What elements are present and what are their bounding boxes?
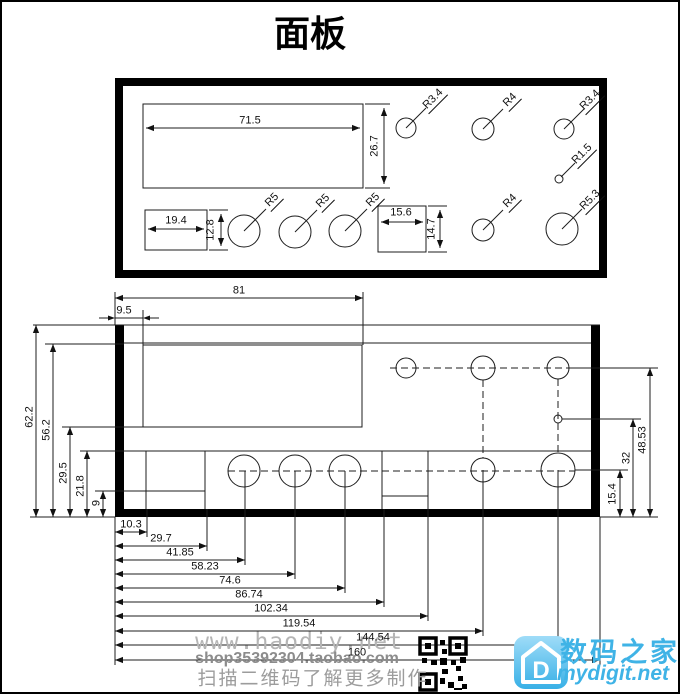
logo-letter: D bbox=[532, 657, 549, 684]
dim-9: 9 bbox=[92, 500, 103, 506]
dim-15-4: 15.4 bbox=[608, 483, 619, 504]
dim-10-3: 10.3 bbox=[120, 520, 141, 531]
dim-74-6: 74.6 bbox=[219, 576, 240, 587]
dim-160: 160 bbox=[348, 648, 366, 659]
drawing-canvas: D 面板 71.5 26.7 19.4 12.8 15.6 14.7 R5 R5… bbox=[0, 0, 680, 694]
dim-left-cutout-height: 12.8 bbox=[206, 219, 217, 240]
dim-86-74: 86.74 bbox=[235, 590, 263, 601]
top-panel-frame bbox=[119, 82, 603, 274]
dim-58-23: 58.23 bbox=[191, 562, 219, 573]
dim-56-2: 56.2 bbox=[42, 419, 53, 440]
dim-48-53: 48.53 bbox=[638, 426, 649, 454]
dim-29-7: 29.7 bbox=[150, 534, 171, 545]
brand-name-en: mydigit.net bbox=[557, 662, 669, 686]
dim-29-5: 29.5 bbox=[59, 462, 70, 483]
dim-41-85: 41.85 bbox=[166, 548, 194, 559]
dim-display-width: 71.5 bbox=[239, 116, 260, 127]
dim-62-2: 62.2 bbox=[25, 406, 36, 427]
dim-display-height: 26.7 bbox=[370, 135, 381, 156]
dim-102-34: 102.34 bbox=[254, 604, 288, 615]
dim-left-cutout-width: 19.4 bbox=[165, 216, 186, 227]
dim-144-54: 144.54 bbox=[356, 633, 390, 644]
dim-32: 32 bbox=[622, 452, 633, 464]
watermark-note: 扫描二维码了解更多制作 bbox=[197, 664, 428, 691]
dim-mid-cutout-height: 14.7 bbox=[427, 218, 438, 239]
dim-9-5: 9.5 bbox=[116, 306, 131, 317]
dim-119-54: 119.54 bbox=[283, 619, 316, 630]
bottom-view-drawing bbox=[30, 292, 658, 665]
dim-21-8: 21.8 bbox=[76, 475, 87, 496]
page-title: 面板 bbox=[274, 5, 346, 57]
dim-81: 81 bbox=[233, 286, 245, 297]
top-view-drawing bbox=[119, 82, 603, 274]
dim-mid-cutout-width: 15.6 bbox=[390, 208, 411, 219]
